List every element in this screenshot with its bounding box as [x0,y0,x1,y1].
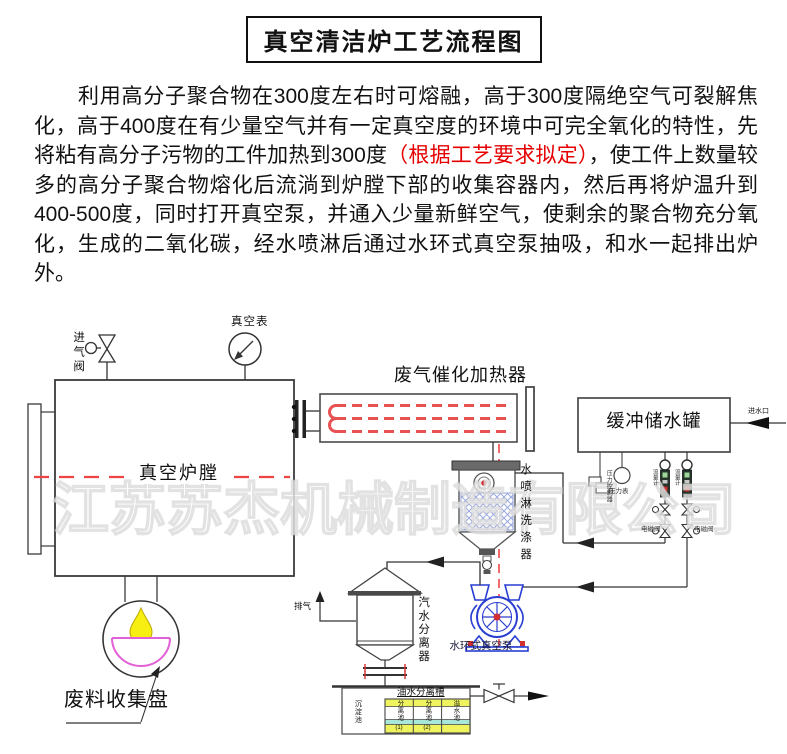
process-flow-page: 江苏苏杰机械制造有限公司 真空清洁炉工艺流程图 利用高分子聚合物在300度左右时… [0,0,787,754]
oil-water-tank-label: 油水分离槽 [397,688,445,698]
level-controller-label: 压力控制器 [605,470,611,503]
steam-water-separator-shape [348,568,421,687]
vacuum-gauge-label: 真空表 [231,316,269,328]
water-ring-pump-label: 水环式真空泵 [443,641,519,652]
pipe-water-to-pump [510,582,687,593]
process-description: 利用高分子聚合物在300度左右时可熔融，高于300度隔绝空气可裂解焦化，高于40… [34,82,758,289]
catalytic-heater-label: 废气催化加热器 [394,366,527,385]
catalytic-heater-shape [320,387,534,451]
furnace-chamber-label: 真空炉膛 [134,463,224,484]
steam-water-separator-label: 汽水分离器 [417,596,429,664]
oil-tank-column-1-number: (1) [392,725,406,731]
page-title: 真空清洁炉工艺流程图 [246,16,542,63]
water-inlet-label: 进水口 [748,408,769,415]
waste-pan-label: 废料收集盘 [64,690,169,711]
vacuum-gauge-icon [229,333,261,380]
oil-tank-left-cell-label: 沉淀池 [354,700,361,724]
intake-valve-label: 进气阀 [72,331,84,375]
furnace-heater-flange [292,400,320,438]
drain-valve-icon [470,684,549,703]
oil-tank-column-3-label: 溢水池 [451,700,458,721]
oil-tank-column-2-label: 分离池 [423,700,430,721]
intake-valve-icon [86,335,116,380]
description-red-note: （根据工艺要求拟定） [387,144,588,167]
spray-scrubber-shape [452,461,520,574]
buffer-tank-label: 缓冲储水罐 [578,412,730,431]
solenoid-valve-1-label: 电磁阀 [641,527,661,534]
exhaust-label: 排气 [294,602,311,611]
oil-tank-column-2-number: (2) [420,725,434,731]
flowmeter-1-label: 流量计 [651,469,657,486]
flowmeter-2-label: 流量计 [673,469,679,486]
oil-tank-column-1-label: 分离池 [395,700,402,721]
solenoid-valve-2-label: 电磁阀 [694,527,714,534]
flowmeter-2-icon [682,452,700,587]
pressure-gauge-icon [614,452,630,484]
spray-scrubber-label: 水喷淋洗涤器 [519,463,531,565]
pressure-gauge-label: 压力表 [609,489,629,496]
